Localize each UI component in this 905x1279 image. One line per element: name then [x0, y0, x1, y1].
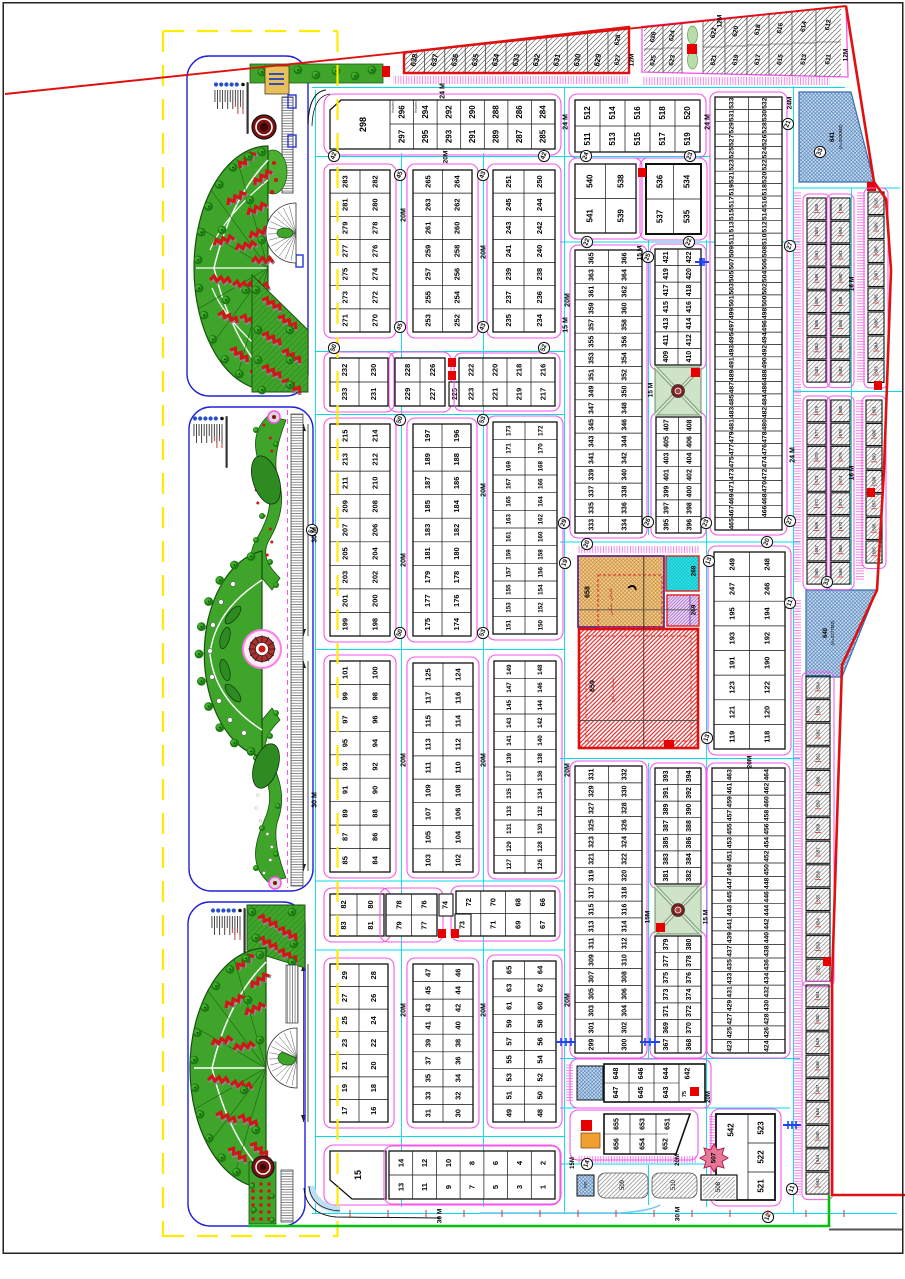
svg-text:550: 550 — [815, 1014, 820, 1022]
svg-text:198: 198 — [371, 618, 380, 631]
svg-text:98: 98 — [371, 692, 380, 700]
svg-text:30 M: 30 M — [312, 792, 319, 808]
svg-text:57: 57 — [504, 1037, 513, 1045]
svg-text:299: 299 — [588, 1039, 595, 1051]
svg-text:474: 474 — [762, 456, 769, 468]
svg-text:562: 562 — [816, 729, 821, 737]
svg-text:507: 507 — [711, 1152, 718, 1163]
svg-text:564: 564 — [816, 682, 821, 690]
svg-text:281: 281 — [341, 198, 350, 211]
svg-text:24: 24 — [369, 1015, 378, 1024]
svg-text:30 M: 30 M — [312, 527, 319, 543]
svg-text:187: 187 — [423, 477, 432, 490]
svg-text:509: 509 — [620, 1179, 626, 1190]
svg-text:160: 160 — [538, 531, 545, 542]
svg-text:478: 478 — [762, 431, 769, 443]
svg-text:515: 515 — [728, 209, 735, 221]
svg-text:476: 476 — [762, 444, 769, 456]
svg-text:295: 295 — [421, 129, 430, 143]
svg-text:313: 313 — [588, 920, 595, 932]
svg-text:86: 86 — [371, 833, 380, 841]
svg-text:71: 71 — [489, 921, 498, 929]
svg-text:308: 308 — [622, 971, 629, 983]
svg-text:13: 13 — [396, 1183, 405, 1191]
svg-text:278: 278 — [371, 222, 380, 235]
svg-text:500: 500 — [762, 295, 769, 307]
svg-text:191: 191 — [727, 657, 736, 670]
svg-text:480: 480 — [762, 419, 769, 431]
svg-text:46: 46 — [454, 969, 463, 977]
svg-text:369: 369 — [663, 1022, 670, 1034]
svg-text:379: 379 — [663, 938, 670, 950]
svg-text:121: 121 — [727, 706, 736, 719]
svg-text:228: 228 — [403, 364, 412, 377]
svg-text:512: 512 — [762, 221, 769, 233]
svg-text:24 M: 24 M — [790, 447, 797, 463]
svg-text:144: 144 — [537, 699, 544, 710]
svg-text:Headers: Headers — [391, 101, 395, 113]
svg-text:361: 361 — [588, 286, 595, 298]
svg-text:594: 594 — [838, 227, 843, 235]
svg-text:173: 173 — [506, 425, 513, 436]
svg-text:429: 429 — [727, 1000, 734, 1012]
svg-text:503: 503 — [728, 283, 735, 295]
svg-text:383: 383 — [663, 853, 670, 865]
svg-text:454: 454 — [763, 837, 770, 849]
svg-text:فندقي سكني: فندقي سكني — [608, 588, 614, 616]
svg-text:72: 72 — [464, 898, 473, 906]
svg-text:202: 202 — [371, 571, 380, 584]
svg-text:502: 502 — [762, 283, 769, 295]
svg-text:149: 149 — [506, 664, 513, 675]
svg-text:504: 504 — [762, 271, 769, 283]
svg-text:203: 203 — [341, 571, 350, 584]
svg-text:413: 413 — [663, 318, 670, 330]
svg-text:20M: 20M — [747, 756, 754, 769]
svg-text:326: 326 — [622, 819, 629, 831]
svg-text:174: 174 — [452, 617, 461, 630]
svg-text:256: 256 — [453, 268, 462, 281]
svg-text:467: 467 — [728, 506, 735, 518]
svg-text:292: 292 — [444, 105, 453, 119]
svg-text:656: 656 — [614, 1138, 621, 1150]
svg-text:15: 15 — [353, 1170, 363, 1180]
svg-text:441: 441 — [727, 918, 734, 930]
svg-text:542: 542 — [727, 1123, 736, 1137]
svg-text:274: 274 — [371, 267, 380, 280]
svg-text:270: 270 — [371, 314, 380, 327]
svg-text:358: 358 — [622, 319, 629, 331]
svg-text:318: 318 — [622, 887, 629, 899]
svg-text:591: 591 — [814, 250, 819, 258]
svg-text:547: 547 — [815, 1084, 820, 1092]
svg-text:337: 337 — [588, 485, 595, 497]
svg-text:147: 147 — [506, 682, 513, 693]
svg-text:310: 310 — [622, 954, 629, 966]
svg-text:532: 532 — [762, 97, 769, 109]
svg-text:153: 153 — [506, 602, 513, 613]
svg-text:563: 563 — [816, 705, 821, 713]
svg-text:73: 73 — [460, 921, 467, 929]
svg-text:49: 49 — [504, 1109, 513, 1117]
svg-text:494: 494 — [762, 332, 769, 344]
svg-text:554: 554 — [816, 918, 821, 926]
svg-text:437: 437 — [727, 945, 734, 957]
svg-text:20M: 20M — [401, 553, 408, 567]
svg-text:55: 55 — [504, 1055, 513, 1063]
svg-text:238: 238 — [535, 268, 544, 281]
svg-text:352: 352 — [622, 369, 629, 381]
svg-text:300: 300 — [622, 1039, 629, 1051]
svg-text:433: 433 — [727, 973, 734, 985]
svg-text:552: 552 — [816, 965, 821, 973]
svg-text:106: 106 — [454, 808, 463, 821]
svg-text:388: 388 — [686, 820, 693, 832]
svg-text:50: 50 — [536, 1091, 545, 1099]
svg-text:223: 223 — [467, 388, 476, 401]
svg-text:423: 423 — [727, 1040, 734, 1052]
svg-text:85: 85 — [341, 856, 350, 864]
svg-text:Headers: Headers — [414, 101, 418, 113]
svg-text:492: 492 — [762, 345, 769, 357]
svg-text:596: 596 — [872, 523, 877, 531]
svg-text:91: 91 — [341, 786, 350, 794]
svg-text:455: 455 — [727, 823, 734, 835]
svg-text:12M: 12M — [717, 15, 724, 28]
svg-text:201: 201 — [341, 594, 350, 607]
svg-text:273: 273 — [341, 291, 350, 304]
svg-text:193: 193 — [727, 632, 736, 645]
svg-text:541: 541 — [586, 209, 595, 223]
svg-text:333: 333 — [588, 519, 595, 531]
svg-text:15 M: 15 M — [563, 317, 570, 333]
svg-text:161: 161 — [506, 531, 513, 542]
svg-text:60: 60 — [536, 1002, 545, 1010]
svg-text:485: 485 — [728, 394, 735, 406]
svg-text:342: 342 — [622, 452, 629, 464]
svg-text:20M: 20M — [481, 245, 488, 259]
svg-text:216: 216 — [539, 364, 548, 377]
svg-text:316: 316 — [622, 904, 629, 916]
svg-text:250: 250 — [535, 175, 544, 188]
svg-text:302: 302 — [622, 1022, 629, 1034]
svg-text:14: 14 — [396, 1158, 405, 1167]
svg-text:195: 195 — [727, 607, 736, 620]
svg-text:127: 127 — [506, 858, 513, 869]
svg-text:272: 272 — [371, 291, 380, 304]
svg-text:177: 177 — [423, 594, 432, 607]
svg-text:435: 435 — [727, 959, 734, 971]
svg-text:420: 420 — [686, 268, 693, 280]
svg-text:152: 152 — [538, 602, 545, 613]
svg-text:136: 136 — [537, 770, 544, 781]
svg-text:289: 289 — [492, 129, 501, 143]
svg-text:319: 319 — [588, 870, 595, 882]
svg-text:475: 475 — [728, 456, 735, 468]
svg-text:207: 207 — [341, 524, 350, 537]
svg-text:362: 362 — [622, 286, 629, 298]
svg-text:248: 248 — [763, 558, 772, 571]
svg-text:167: 167 — [506, 478, 513, 489]
svg-text:83: 83 — [339, 921, 348, 929]
svg-text:5: 5 — [491, 1185, 500, 1189]
svg-text:290: 290 — [468, 105, 477, 119]
svg-text:192: 192 — [763, 632, 772, 645]
svg-text:414: 414 — [686, 318, 693, 330]
svg-text:505: 505 — [728, 271, 735, 283]
svg-text:41: 41 — [424, 1021, 433, 1029]
svg-text:513: 513 — [608, 132, 617, 146]
svg-text:487: 487 — [728, 382, 735, 394]
svg-text:452: 452 — [763, 850, 770, 862]
svg-text:347: 347 — [588, 402, 595, 414]
svg-text:354: 354 — [622, 352, 629, 364]
svg-text:130: 130 — [537, 823, 544, 834]
svg-text:608: 608 — [874, 246, 879, 254]
svg-text:491: 491 — [728, 357, 735, 369]
svg-text:371: 371 — [663, 1005, 670, 1017]
svg-text:139: 139 — [506, 752, 513, 763]
svg-text:368: 368 — [686, 1039, 693, 1051]
svg-text:159: 159 — [506, 549, 513, 560]
svg-text:357: 357 — [588, 319, 595, 331]
svg-text:255: 255 — [423, 291, 432, 304]
svg-text:19: 19 — [340, 1084, 349, 1092]
svg-text:283: 283 — [341, 175, 350, 188]
svg-text:389: 389 — [663, 803, 670, 815]
svg-text:367: 367 — [663, 1039, 670, 1051]
svg-text:116: 116 — [454, 692, 463, 704]
svg-text:434: 434 — [763, 973, 770, 985]
svg-text:599: 599 — [872, 453, 877, 461]
svg-text:577: 577 — [814, 429, 819, 437]
svg-text:16 M: 16 M — [849, 466, 856, 480]
svg-text:133: 133 — [506, 805, 513, 816]
svg-text:655: 655 — [614, 1118, 621, 1130]
svg-text:305: 305 — [588, 988, 595, 1000]
svg-text:645: 645 — [638, 1087, 645, 1099]
svg-text:328: 328 — [622, 802, 629, 814]
svg-text:20: 20 — [369, 1061, 378, 1069]
svg-text:12M: 12M — [843, 49, 850, 62]
svg-text:642: 642 — [685, 1068, 692, 1080]
svg-text:566: 566 — [838, 568, 843, 576]
svg-text:565: 565 — [814, 568, 819, 576]
svg-text:450: 450 — [763, 864, 770, 876]
svg-text:555: 555 — [816, 894, 821, 902]
svg-text:150: 150 — [538, 619, 545, 630]
svg-text:592: 592 — [838, 250, 843, 258]
svg-text:580: 580 — [838, 405, 843, 413]
svg-text:37: 37 — [424, 1056, 433, 1064]
svg-text:237: 237 — [504, 291, 513, 304]
svg-text:364: 364 — [622, 269, 629, 281]
svg-text:432: 432 — [763, 986, 770, 998]
svg-text:15 M: 15 M — [648, 383, 655, 397]
svg-text:156: 156 — [538, 566, 545, 577]
svg-text:428: 428 — [763, 1013, 770, 1025]
svg-text:93: 93 — [341, 762, 350, 770]
svg-text:572: 572 — [838, 498, 843, 506]
svg-text:(A=3277M2): (A=3277M2) — [830, 620, 835, 645]
svg-text:483: 483 — [728, 407, 735, 419]
svg-text:42: 42 — [454, 1004, 463, 1012]
svg-text:596: 596 — [838, 203, 843, 211]
svg-text:253: 253 — [423, 314, 432, 327]
svg-text:353: 353 — [588, 352, 595, 364]
svg-text:90: 90 — [371, 786, 380, 794]
svg-text:155: 155 — [506, 584, 513, 595]
svg-text:111: 111 — [424, 762, 433, 774]
svg-text:339: 339 — [588, 469, 595, 481]
svg-text:589: 589 — [814, 273, 819, 281]
svg-text:458: 458 — [763, 810, 770, 822]
svg-text:314: 314 — [622, 920, 629, 932]
svg-text:526: 526 — [762, 134, 769, 146]
svg-text:356: 356 — [622, 336, 629, 348]
svg-text:23: 23 — [340, 1039, 349, 1047]
svg-text:200: 200 — [371, 594, 380, 607]
svg-text:180: 180 — [452, 547, 461, 560]
svg-text:600: 600 — [872, 429, 877, 437]
svg-text:77: 77 — [420, 921, 429, 929]
svg-text:338: 338 — [622, 485, 629, 497]
svg-text:107: 107 — [424, 808, 433, 821]
svg-text:409: 409 — [663, 351, 670, 363]
svg-text:497: 497 — [728, 320, 735, 332]
svg-text:233: 233 — [340, 388, 349, 401]
svg-text:45: 45 — [424, 986, 433, 994]
svg-text:132: 132 — [537, 805, 544, 816]
svg-text:543: 543 — [815, 1178, 820, 1186]
svg-text:103: 103 — [424, 854, 433, 867]
svg-text:185: 185 — [423, 500, 432, 513]
svg-text:561: 561 — [816, 752, 821, 760]
svg-text:31: 31 — [424, 1109, 433, 1117]
svg-text:113: 113 — [424, 738, 433, 750]
svg-text:105: 105 — [424, 831, 433, 844]
svg-text:348: 348 — [622, 402, 629, 414]
svg-text:168: 168 — [538, 460, 545, 471]
svg-text:63: 63 — [504, 984, 513, 992]
svg-text:294: 294 — [421, 105, 430, 119]
svg-text:170: 170 — [538, 443, 545, 454]
svg-text:519: 519 — [683, 132, 692, 146]
svg-text:447: 447 — [727, 878, 734, 890]
svg-text:489: 489 — [728, 370, 735, 382]
svg-text:151: 151 — [506, 619, 513, 630]
svg-text:593: 593 — [814, 227, 819, 235]
svg-text:24 M: 24 M — [705, 114, 712, 130]
svg-text:21: 21 — [340, 1061, 349, 1069]
svg-text:372: 372 — [686, 1005, 693, 1017]
svg-text:20M: 20M — [565, 293, 572, 307]
svg-text:298: 298 — [358, 117, 368, 132]
svg-text:534: 534 — [683, 174, 692, 188]
svg-text:271: 271 — [341, 314, 350, 327]
svg-text:535: 535 — [683, 209, 692, 223]
svg-text:439: 439 — [727, 932, 734, 944]
svg-text:630: 630 — [583, 1181, 588, 1188]
svg-text:335: 335 — [588, 502, 595, 514]
svg-text:568: 568 — [838, 545, 843, 553]
svg-text:263: 263 — [423, 198, 432, 211]
svg-text:517: 517 — [728, 196, 735, 208]
svg-text:102: 102 — [454, 854, 463, 867]
svg-text:578: 578 — [838, 429, 843, 437]
svg-text:575: 575 — [814, 452, 819, 460]
svg-text:518: 518 — [762, 184, 769, 196]
svg-text:145: 145 — [506, 699, 513, 710]
svg-text:520: 520 — [683, 106, 692, 120]
svg-text:48: 48 — [536, 1109, 545, 1117]
svg-text:659: 659 — [590, 680, 597, 692]
svg-text:264: 264 — [453, 175, 462, 188]
svg-text:143: 143 — [506, 717, 513, 728]
svg-text:51: 51 — [504, 1091, 513, 1099]
svg-text:468: 468 — [762, 493, 769, 505]
svg-text:117: 117 — [424, 692, 433, 704]
svg-text:288: 288 — [492, 105, 501, 119]
svg-text:470: 470 — [762, 481, 769, 493]
svg-text:65: 65 — [504, 966, 513, 974]
svg-text:392: 392 — [686, 787, 693, 799]
svg-text:417: 417 — [663, 284, 670, 296]
svg-text:351: 351 — [588, 369, 595, 381]
svg-text:370: 370 — [686, 1022, 693, 1034]
svg-text:10: 10 — [444, 1159, 453, 1167]
svg-text:89: 89 — [341, 809, 350, 817]
svg-text:35: 35 — [424, 1074, 433, 1082]
svg-text:422: 422 — [686, 251, 693, 263]
svg-text:459: 459 — [727, 796, 734, 808]
svg-text:61: 61 — [504, 1002, 513, 1010]
svg-text:157: 157 — [506, 566, 513, 577]
svg-text:293: 293 — [444, 129, 453, 143]
svg-text:124: 124 — [454, 668, 463, 681]
svg-text:15M: 15M — [645, 911, 652, 924]
svg-text:96: 96 — [371, 715, 380, 723]
svg-text:416: 416 — [686, 301, 693, 313]
svg-text:486: 486 — [762, 382, 769, 394]
svg-text:280: 280 — [371, 198, 380, 211]
svg-text:92: 92 — [371, 762, 380, 770]
svg-text:140: 140 — [537, 735, 544, 746]
svg-text:154: 154 — [538, 584, 545, 595]
svg-text:81: 81 — [366, 921, 375, 929]
svg-text:218: 218 — [515, 364, 524, 377]
svg-text:135: 135 — [506, 788, 513, 799]
svg-text:222: 222 — [467, 364, 476, 377]
svg-text:239: 239 — [504, 268, 513, 281]
svg-text:141: 141 — [506, 735, 513, 746]
svg-text:376: 376 — [686, 972, 693, 984]
svg-text:165: 165 — [506, 496, 513, 507]
svg-text:75: 75 — [682, 1091, 688, 1097]
svg-text:245: 245 — [504, 198, 513, 211]
svg-text:533: 533 — [728, 97, 735, 109]
svg-text:44: 44 — [454, 985, 463, 994]
svg-text:137: 137 — [506, 770, 513, 781]
svg-text:425: 425 — [727, 1027, 734, 1039]
svg-text:582: 582 — [838, 366, 843, 374]
svg-text:556: 556 — [816, 870, 821, 878]
svg-text:181: 181 — [423, 547, 432, 560]
svg-text:148: 148 — [537, 664, 544, 675]
svg-text:176: 176 — [452, 594, 461, 607]
svg-text:12M: 12M — [629, 54, 636, 67]
svg-text:585: 585 — [814, 319, 819, 327]
